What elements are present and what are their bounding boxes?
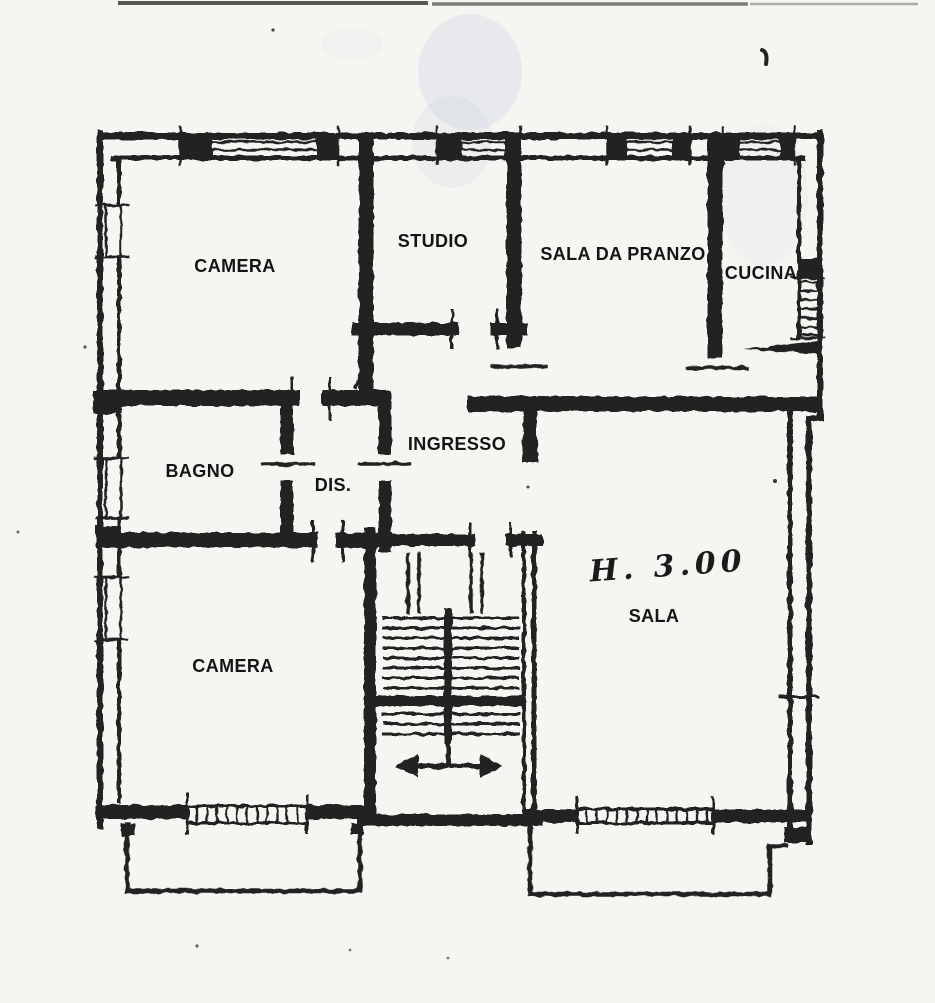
ink-speck [447, 957, 450, 960]
window-erase [107, 458, 127, 518]
ink-speck [195, 944, 198, 947]
room-label-cucina: CUCINA [725, 263, 797, 283]
floor-plan-svg: CAMERASTUDIOSALA DA PRANZOCUCINABAGNODIS… [0, 0, 935, 1003]
room-label-ingresso: INGRESSO [408, 434, 506, 454]
room-label-camera-2: CAMERA [192, 656, 273, 676]
window-pier [723, 133, 740, 158]
room-label-bagno: BAGNO [166, 461, 235, 481]
window-pier [180, 133, 212, 158]
room-label-sala: SALA [629, 606, 680, 626]
room-label-sala-da-pranzo: SALA DA PRANZO [540, 244, 705, 264]
window-rungs [801, 282, 816, 335]
window-pier [437, 133, 462, 158]
scanned-floor-plan-page: CAMERASTUDIOSALA DA PRANZOCUCINABAGNODIS… [0, 0, 935, 1003]
room-label-dis: DIS. [315, 475, 352, 495]
balcony-corner-block [121, 824, 135, 836]
ink-speck [271, 28, 274, 31]
window-pier [780, 133, 795, 158]
wall-foot [784, 827, 810, 843]
ink-speck [349, 949, 352, 952]
blue-smudge [322, 28, 382, 60]
wall-stub-end [522, 440, 538, 462]
window-erase [107, 577, 127, 640]
window-pier [317, 133, 338, 158]
room-label-camera-1: CAMERA [194, 256, 275, 276]
window-pier [607, 133, 627, 158]
window-erase [107, 205, 127, 257]
window-pier [672, 133, 690, 158]
ink-speck [527, 486, 530, 489]
balcony-corner-block [351, 824, 363, 834]
window-pier [505, 133, 520, 158]
room-label-studio: STUDIO [398, 231, 468, 251]
ink-speck [17, 531, 20, 534]
window-pier [797, 258, 819, 278]
ink-speck [83, 345, 86, 348]
ink-speck [773, 479, 777, 483]
